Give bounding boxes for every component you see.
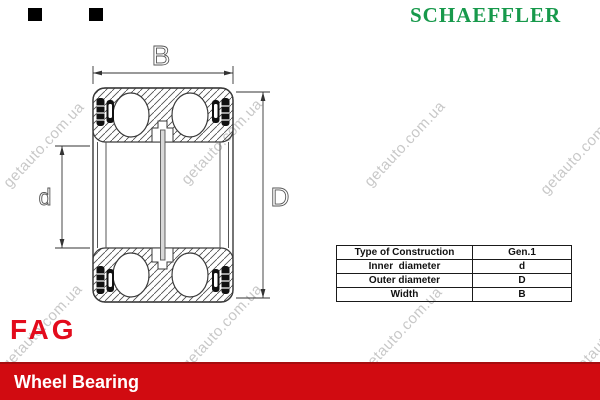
- arrowhead: [224, 71, 233, 76]
- spec-value: d: [473, 260, 572, 274]
- watermark: getauto.com.ua: [537, 106, 600, 198]
- ball: [172, 93, 208, 137]
- arrowhead: [261, 92, 266, 101]
- dimension-b-label: B: [152, 40, 171, 71]
- schaeffler-logo: SCHAEFFLER: [410, 3, 590, 28]
- fag-logo: FAG: [10, 314, 77, 346]
- spec-label: Inner diameter: [337, 260, 473, 274]
- product-banner: Wheel Bearing: [0, 362, 600, 400]
- spec-value: B: [473, 288, 572, 302]
- arrowhead: [93, 71, 102, 76]
- arrowhead: [60, 239, 65, 248]
- spec-label: Width: [337, 288, 473, 302]
- arrowhead: [60, 146, 65, 155]
- dimension-D: [236, 92, 270, 298]
- table-row: Inner diameter d: [337, 260, 572, 274]
- spec-label: Type of Construction: [337, 246, 473, 260]
- arrowhead: [261, 289, 266, 298]
- product-title: Wheel Bearing: [14, 372, 139, 393]
- spec-table: Type of Construction Gen.1 Inner diamete…: [336, 245, 572, 302]
- dimension-D-label: D: [271, 182, 290, 212]
- spec-value: D: [473, 274, 572, 288]
- ball: [113, 253, 149, 297]
- centre-split: [161, 130, 166, 260]
- table-row: Width B: [337, 288, 572, 302]
- dimension-d: [55, 146, 90, 248]
- table-row: Type of Construction Gen.1: [337, 246, 572, 260]
- ball: [172, 253, 208, 297]
- ball: [113, 93, 149, 137]
- dimension-d-label: d: [39, 184, 52, 210]
- watermark: getauto.com.ua: [361, 98, 449, 190]
- spec-label: Outer diameter: [337, 274, 473, 288]
- table-row: Outer diameter D: [337, 274, 572, 288]
- spec-value: Gen.1: [473, 246, 572, 260]
- bearing-technical-drawing: B d D: [0, 0, 320, 360]
